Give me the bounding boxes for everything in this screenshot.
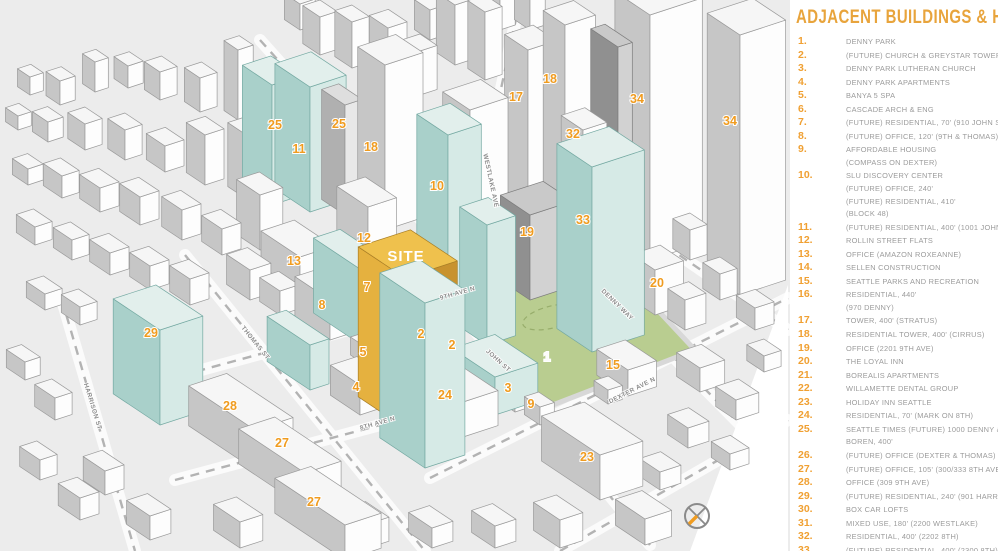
map-number-label: 5 [360,345,367,359]
legend-item-number: 7. [796,116,846,129]
legend-item-label: THE LOYAL INN [846,356,994,369]
map-number-label: 27 [275,436,289,450]
map-number-label: 11 [292,142,305,156]
legend-item-number: 19. [796,342,846,355]
legend-item-number: 15. [796,275,846,288]
map-number-label: 17 [509,90,523,104]
legend-item-28: 28.OFFICE (309 9TH AVE) [796,476,994,490]
legend-item-label: WILLAMETTE DENTAL GROUP [846,383,994,396]
legend-item-label: OFFICE (2201 9TH AVE) [846,343,994,356]
legend-item-number: 27. [796,463,846,476]
legend-item-2: 2.(FUTURE) CHURCH & GREYSTAR TOWER, 280' [796,49,994,63]
legend-item-label: (FUTURE) RESIDENTIAL, 410' [846,196,994,209]
legend-item-label: (FUTURE) RESIDENTIAL, 240' (901 HARRISON… [846,491,998,504]
map-number-label: 2 [449,338,456,352]
legend-item-label: (FUTURE) RESIDENTIAL, 400' (2300 8TH) [846,545,998,551]
legend-item-17: 17.TOWER, 400' (STRATUS) [796,314,994,328]
legend-item-30: 30.BOX CAR LOFTS [796,503,994,517]
map-number-label: 10 [430,179,444,193]
legend-item-23: 23.HOLIDAY INN SEATTLE [796,396,994,410]
legend-item-label: (FUTURE) RESIDENTIAL, 70' (910 JOHN ST) [846,117,998,130]
site-label: SITE [387,248,424,265]
map-number-label: 32 [566,127,580,141]
legend-item-label: BOREALIS APARTMENTS [846,370,994,383]
legend-item-25-cont: BOREN, 400' [796,436,994,449]
legend-item-number: 16. [796,288,846,301]
map-number-label: 13 [287,254,301,268]
legend-item-label: HOLIDAY INN SEATTLE [846,397,994,410]
legend-item-label: CASCADE ARCH & ENG [846,104,994,117]
legend-item-label: RESIDENTIAL, 400' (2202 8TH) [846,531,994,544]
legend-item-label: DENNY PARK [846,36,994,49]
legend-item-number: 8. [796,130,846,143]
legend-item-14: 14.SELLEN CONSTRUCTION [796,261,994,275]
map-number-label: 24 [438,388,452,402]
legend-item-11: 11.(FUTURE) RESIDENTIAL, 400' (1001 JOHN… [796,221,994,235]
legend-item-label: RESIDENTIAL, 70' (MARK ON 8TH) [846,410,994,423]
legend-item-label: SEATTLE TIMES (FUTURE) 1000 DENNY & 121 [846,424,998,437]
legend-item-number: 24. [796,409,846,422]
legend-item-21: 21.BOREALIS APARTMENTS [796,369,994,383]
map-number-label: 34 [723,114,737,128]
map-number-label: 28 [223,399,237,413]
map-number-label: 3 [505,381,512,395]
legend-item-number: 12. [796,234,846,247]
legend-item-number: 3. [796,62,846,75]
map-number-label: 33 [576,213,590,227]
legend-item-number: 1. [796,35,846,48]
legend-item-label: DENNY PARK LUTHERAN CHURCH [846,63,994,76]
legend-item-31: 31.MIXED USE, 180' (2200 WESTLAKE) [796,517,994,531]
legend-item-8: 8.(FUTURE) OFFICE, 120' (9TH & THOMAS) [796,130,994,144]
legend-item-29: 29.(FUTURE) RESIDENTIAL, 240' (901 HARRI… [796,490,994,504]
legend-item-number: 5. [796,89,846,102]
legend-item-5: 5.BANYA 5 SPA [796,89,994,103]
legend-list: 1.DENNY PARK2.(FUTURE) CHURCH & GREYSTAR… [796,35,994,551]
legend-item-10-cont: (FUTURE) OFFICE, 240' [796,183,994,196]
legend-item-number: 28. [796,476,846,489]
legend-item-label: (FUTURE) RESIDENTIAL, 400' (1001 JOHN ST… [846,222,998,235]
legend-item-27: 27.(FUTURE) OFFICE, 105' (300/333 8TH AV… [796,463,994,477]
legend-item-number: 4. [796,76,846,89]
legend-item-number: 6. [796,103,846,116]
legend-item-label: OFFICE (AMAZON ROXEANNE) [846,249,994,262]
legend-item-number: 26. [796,449,846,462]
map-number-label: 25 [332,117,346,131]
legend-item-number: 14. [796,261,846,274]
legend-item-label: SEATTLE PARKS AND RECREATION [846,276,994,289]
legend-item-number: 2. [796,49,846,62]
map-number-label: 4 [353,380,360,394]
legend-item-label: (FUTURE) OFFICE, 105' (300/333 8TH AVE) [846,464,998,477]
legend-item-3: 3.DENNY PARK LUTHERAN CHURCH [796,62,994,76]
legend-item-24: 24.RESIDENTIAL, 70' (MARK ON 8TH) [796,409,994,423]
map-number-label: 8 [319,298,326,312]
legend-item-label: SELLEN CONSTRUCTION [846,262,994,275]
map-number-label: 27 [307,495,321,509]
legend-item-number: 31. [796,517,846,530]
legend-item-number: 18. [796,328,846,341]
legend-item-10-cont: (BLOCK 48) [796,208,994,221]
legend-item-number: 10. [796,169,846,182]
legend-item-label: RESIDENTIAL TOWER, 400' (CIRRUS) [846,329,994,342]
map-number-label: 23 [580,450,594,464]
map-number-label: 18 [543,72,557,86]
legend-item-number: 21. [796,369,846,382]
legend-item-number: 29. [796,490,846,503]
legend-item-label: SLU DISCOVERY CENTER [846,170,994,183]
map-number-label: 15 [606,358,620,372]
legend-item-12: 12.ROLLIN STREET FLATS [796,234,994,248]
legend-item-number: 11. [796,221,846,234]
legend-item-9: 9.AFFORDABLE HOUSING [796,143,994,157]
legend-item-label: DENNY PARK APARTMENTS [846,77,994,90]
legend-item-label: BANYA 5 SPA [846,90,994,103]
legend-item-label: BOREN, 400' [846,436,994,449]
map-number-label: 19 [520,225,534,239]
legend-title: ADJACENT BUILDINGS & HEIGHTS [796,6,970,28]
legend-item-19: 19.OFFICE (2201 9TH AVE) [796,342,994,356]
legend-item-15: 15.SEATTLE PARKS AND RECREATION [796,275,994,289]
legend-item-number: 9. [796,143,846,156]
map-number-label: 25 [268,118,282,132]
legend-item-label: (FUTURE) OFFICE, 240' [846,183,994,196]
legend-item-label: RESIDENTIAL, 440' [846,289,994,302]
legend-item-number: 33. [796,544,846,551]
map-number-label: 2 [418,327,425,341]
legend-item-label: ROLLIN STREET FLATS [846,235,994,248]
legend-item-label: BOX CAR LOFTS [846,504,994,517]
legend-item-32: 32.RESIDENTIAL, 400' (2202 8TH) [796,530,994,544]
map-number-label: 9 [528,397,535,411]
legend-item-label: (COMPASS ON DEXTER) [846,157,994,170]
legend-item-label: (BLOCK 48) [846,208,994,221]
map-number-label: 20 [650,276,664,290]
legend-item-10-cont: (FUTURE) RESIDENTIAL, 410' [796,196,994,209]
legend-item-number: 17. [796,314,846,327]
page: SITE251125181012137852242439115202319171… [0,0,998,551]
legend-item-16: 16.RESIDENTIAL, 440' [796,288,994,302]
legend-item-label: OFFICE (309 9TH AVE) [846,477,994,490]
legend-item-16-cont: (970 DENNY) [796,302,994,315]
legend-item-number: 22. [796,382,846,395]
legend-item-4: 4.DENNY PARK APARTMENTS [796,76,994,90]
legend-item-number: 23. [796,396,846,409]
legend-item-20: 20.THE LOYAL INN [796,355,994,369]
legend-panel: ADJACENT BUILDINGS & HEIGHTS 1.DENNY PAR… [790,0,998,551]
legend-item-25: 25.SEATTLE TIMES (FUTURE) 1000 DENNY & 1… [796,423,994,437]
legend-item-number: 25. [796,423,846,436]
axonometric-map: SITE251125181012137852242439115202319171… [0,0,790,551]
legend-item-label: AFFORDABLE HOUSING [846,144,994,157]
legend-item-label: (FUTURE) CHURCH & GREYSTAR TOWER, 280' [846,50,998,63]
map-number-label: 34 [630,92,644,106]
map-number-label: 18 [364,140,378,154]
legend-item-26: 26.(FUTURE) OFFICE (DEXTER & THOMAS) [796,449,994,463]
legend-item-label: TOWER, 400' (STRATUS) [846,315,994,328]
map-number-label: 1 [544,350,551,364]
map-number-label: 12 [357,231,371,245]
legend-item-13: 13.OFFICE (AMAZON ROXEANNE) [796,248,994,262]
legend-item-number: 32. [796,530,846,543]
legend-item-number: 13. [796,248,846,261]
legend-item-label: (FUTURE) OFFICE (DEXTER & THOMAS) [846,450,996,463]
legend-item-6: 6.CASCADE ARCH & ENG [796,103,994,117]
legend-item-label: (FUTURE) OFFICE, 120' (9TH & THOMAS) [846,131,998,144]
legend-item-label: (970 DENNY) [846,302,994,315]
legend-item-18: 18.RESIDENTIAL TOWER, 400' (CIRRUS) [796,328,994,342]
map-number-label: 7 [364,280,371,294]
axonometric-map-wrap: SITE251125181012137852242439115202319171… [0,0,790,551]
legend-item-22: 22.WILLAMETTE DENTAL GROUP [796,382,994,396]
legend-item-number: 30. [796,503,846,516]
map-number-label: 29 [144,326,158,340]
legend-item-1: 1.DENNY PARK [796,35,994,49]
legend-item-9-cont: (COMPASS ON DEXTER) [796,157,994,170]
legend-item-label: MIXED USE, 180' (2200 WESTLAKE) [846,518,994,531]
legend-item-7: 7.(FUTURE) RESIDENTIAL, 70' (910 JOHN ST… [796,116,994,130]
legend-item-number: 20. [796,355,846,368]
legend-item-33: 33.(FUTURE) RESIDENTIAL, 400' (2300 8TH) [796,544,994,551]
legend-item-10: 10.SLU DISCOVERY CENTER [796,169,994,183]
